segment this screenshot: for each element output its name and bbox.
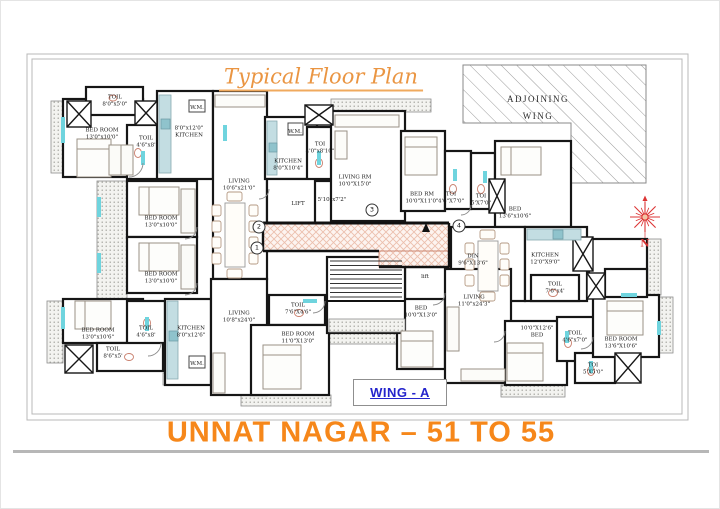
- room-label: LIVING10'6"x21'0": [223, 179, 255, 192]
- compass-n-label: N: [640, 239, 649, 250]
- room-label: TOIL8'0"x5'0": [102, 95, 127, 108]
- floor-plan-page: Typical Floor Plan ADJOINING WING WING -…: [0, 0, 720, 509]
- room-label: BED RM10'0"X11'0": [406, 192, 439, 205]
- room-label: TOIL8'6"x5': [103, 347, 122, 360]
- room-label: TOI4'0"x8'10": [306, 142, 335, 155]
- room-label: TOI4'6"X7'0": [438, 192, 464, 205]
- corridor-marker: 1: [251, 242, 264, 255]
- room-label: 8'0"x12'0"KITCHEN: [175, 126, 204, 139]
- adjoining-wing-label: ADJOINING WING: [507, 91, 569, 125]
- room-label: BED13'6"x10'6": [499, 207, 531, 220]
- room-label: BED ROOM13'0"x10'0": [144, 272, 177, 285]
- room-label: 5'10"x7'2": [318, 197, 347, 204]
- room-label: W.M.: [190, 361, 204, 368]
- compass-rose: [630, 196, 660, 239]
- room-label: LIFT: [291, 201, 304, 208]
- project-title: UNNAT NAGAR – 51 TO 55: [167, 417, 555, 450]
- room-label: BED10'0"X13'0": [405, 306, 438, 319]
- room-label: BED ROOM13'0"x10'0": [85, 128, 118, 141]
- room-label: 10'0"X12'6"BED: [521, 326, 554, 339]
- room-label: TOIL7'6"x4': [545, 282, 564, 295]
- room-label: LIVING10'8"x24'0": [223, 311, 255, 324]
- room-label: TOI5'X7'0": [471, 194, 491, 207]
- corridor-marker: 4: [453, 220, 466, 233]
- room-label: LIVING RM10'0"X15'0": [339, 175, 372, 188]
- room-label: BED ROOM13'0"x10'0": [144, 216, 177, 229]
- adjoining-wing-line2: WING: [507, 108, 569, 125]
- room-label: BED ROOM11'0"X13'0": [281, 332, 314, 345]
- room-label: BED ROOM13'6"X10'6": [604, 337, 637, 350]
- room-label: TOIL4'6"x7'0": [562, 331, 587, 344]
- room-label: TOI5'X5'0": [583, 363, 603, 376]
- room-label: BED ROOM13'0"x10'6": [81, 328, 114, 341]
- room-label: KITCHEN12'0"X9'0": [530, 253, 560, 266]
- room-label: DIN9'6"X13'6": [458, 254, 488, 267]
- room-label: W.M.: [288, 129, 302, 136]
- room-label: LIVING11'0"x24'3": [458, 295, 490, 308]
- corridor-marker: 3: [366, 204, 379, 217]
- wing-label: WING - A: [353, 379, 447, 406]
- room-label: TOIL4'6"x8': [136, 136, 155, 149]
- room-label: KITCHEN8'0"x12'6": [177, 326, 206, 339]
- room-label: lift: [421, 274, 429, 281]
- corridor-marker: 2: [253, 221, 266, 234]
- plan-title: Typical Floor Plan: [219, 65, 423, 92]
- adjoining-wing-line1: ADJOINING: [507, 91, 569, 108]
- room-label: W.M.: [190, 105, 204, 112]
- room-label: TOIL7'6"X4'6": [285, 303, 311, 316]
- room-label: TOIL4'6"x8': [136, 326, 155, 339]
- room-label: KITCHEN8'0"X10'4": [273, 159, 303, 172]
